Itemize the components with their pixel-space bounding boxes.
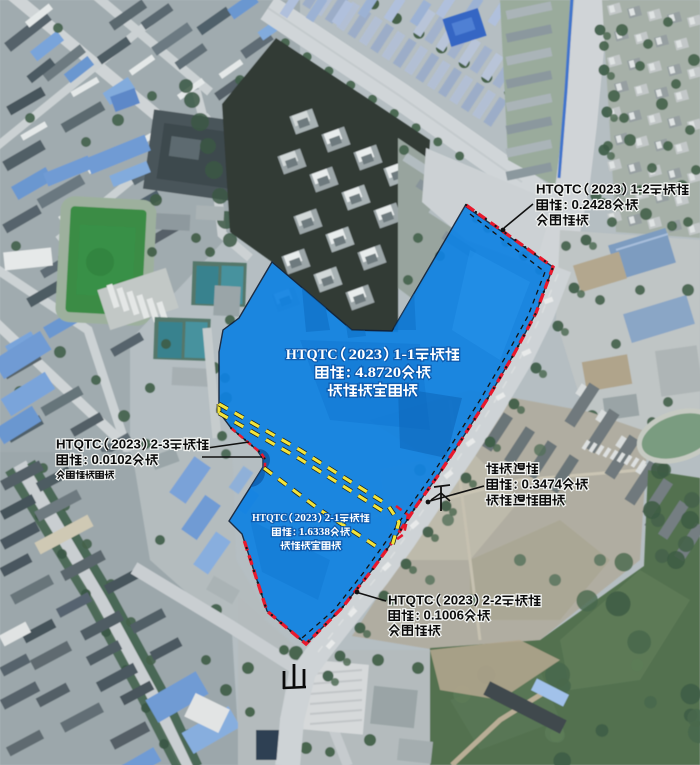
svg-text:HTQTC: HTQTC xyxy=(388,593,434,608)
svg-text:0.0102: 0.0102 xyxy=(92,452,133,467)
svg-text:0.3474: 0.3474 xyxy=(522,476,563,491)
svg-text:0.1006: 0.1006 xyxy=(424,608,465,623)
svg-text:HTQTC: HTQTC xyxy=(286,347,338,363)
svg-text:HTQTC: HTQTC xyxy=(56,437,102,452)
svg-text:2023: 2023 xyxy=(111,437,140,452)
svg-text:1.6338: 1.6338 xyxy=(299,527,330,538)
svg-text:2023: 2023 xyxy=(349,347,383,363)
svg-text:2-1: 2-1 xyxy=(325,513,340,524)
svg-text:2-2: 2-2 xyxy=(483,593,502,608)
svg-text:0.2428: 0.2428 xyxy=(572,197,613,212)
svg-text:4.8720: 4.8720 xyxy=(355,365,401,381)
svg-text:2023: 2023 xyxy=(591,182,621,197)
svg-text:2023: 2023 xyxy=(295,513,318,524)
svg-text:1-1: 1-1 xyxy=(393,347,415,363)
svg-text:HTQTC: HTQTC xyxy=(536,182,582,197)
svg-text:2-3: 2-3 xyxy=(151,437,170,452)
svg-text:HTQTC: HTQTC xyxy=(252,513,287,524)
svg-text:1-2: 1-2 xyxy=(631,182,650,197)
svg-text:2023: 2023 xyxy=(443,593,473,608)
